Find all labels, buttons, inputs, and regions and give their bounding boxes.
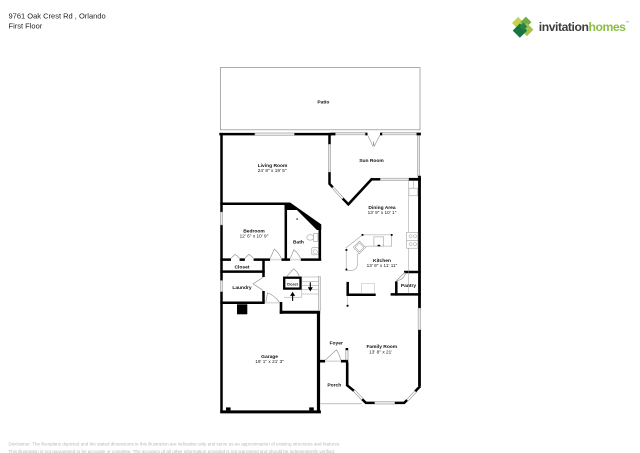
svg-text:12' 6" x 10' 9": 12' 6" x 10' 9" — [240, 234, 269, 239]
svg-text:invitationhomes™: invitationhomes™ — [539, 20, 630, 34]
svg-text:This illustration is not guara: This illustration is not guaranteed to b… — [9, 449, 336, 453]
svg-text:Foyer: Foyer — [330, 340, 343, 346]
svg-text:First Floor: First Floor — [9, 22, 43, 31]
svg-text:Closet: Closet — [235, 264, 250, 270]
svg-text:9761 Oak Crest Rd , Orlando: 9761 Oak Crest Rd , Orlando — [9, 11, 106, 20]
svg-text:Bath: Bath — [293, 239, 304, 245]
svg-text:Laundry: Laundry — [232, 285, 252, 291]
svg-text:Pantry: Pantry — [401, 283, 417, 289]
svg-text:Closet: Closet — [287, 282, 299, 286]
svg-text:Disclaimer: The floorplans dep: Disclaimer: The floorplans depicted and … — [9, 441, 341, 446]
svg-text:Patio: Patio — [317, 100, 329, 106]
svg-text:19' 1" x 21' 3": 19' 1" x 21' 3" — [255, 359, 284, 364]
svg-text:13' 8" x 21': 13' 8" x 21' — [369, 349, 392, 354]
svg-text:13' 9" x 11' 11": 13' 9" x 11' 11" — [367, 263, 398, 268]
svg-text:Porch: Porch — [327, 383, 341, 389]
svg-text:13' 9" x 10' 1": 13' 9" x 10' 1" — [368, 210, 397, 215]
svg-text:Sun Room: Sun Room — [359, 158, 384, 164]
svg-text:24' 8" x 19' 5": 24' 8" x 19' 5" — [258, 168, 287, 173]
